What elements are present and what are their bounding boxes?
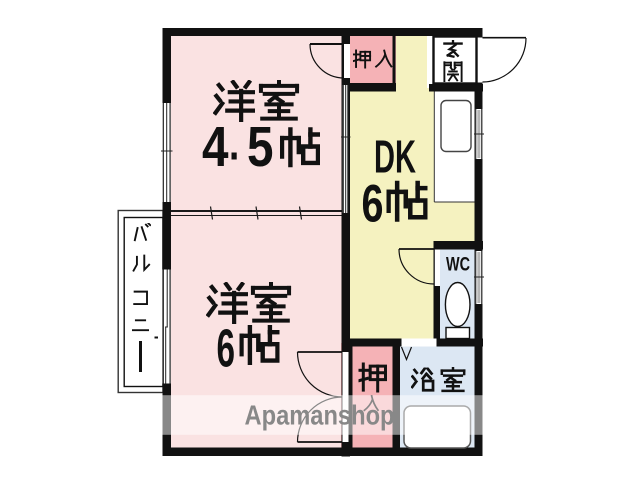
svg-text:5: 5 bbox=[247, 115, 274, 179]
svg-text:6: 6 bbox=[217, 319, 236, 378]
svg-text:4: 4 bbox=[202, 115, 229, 179]
svg-text:6: 6 bbox=[362, 175, 384, 234]
svg-text:WC: WC bbox=[446, 254, 470, 276]
svg-text:Apamanshop: Apamanshop bbox=[245, 400, 395, 431]
